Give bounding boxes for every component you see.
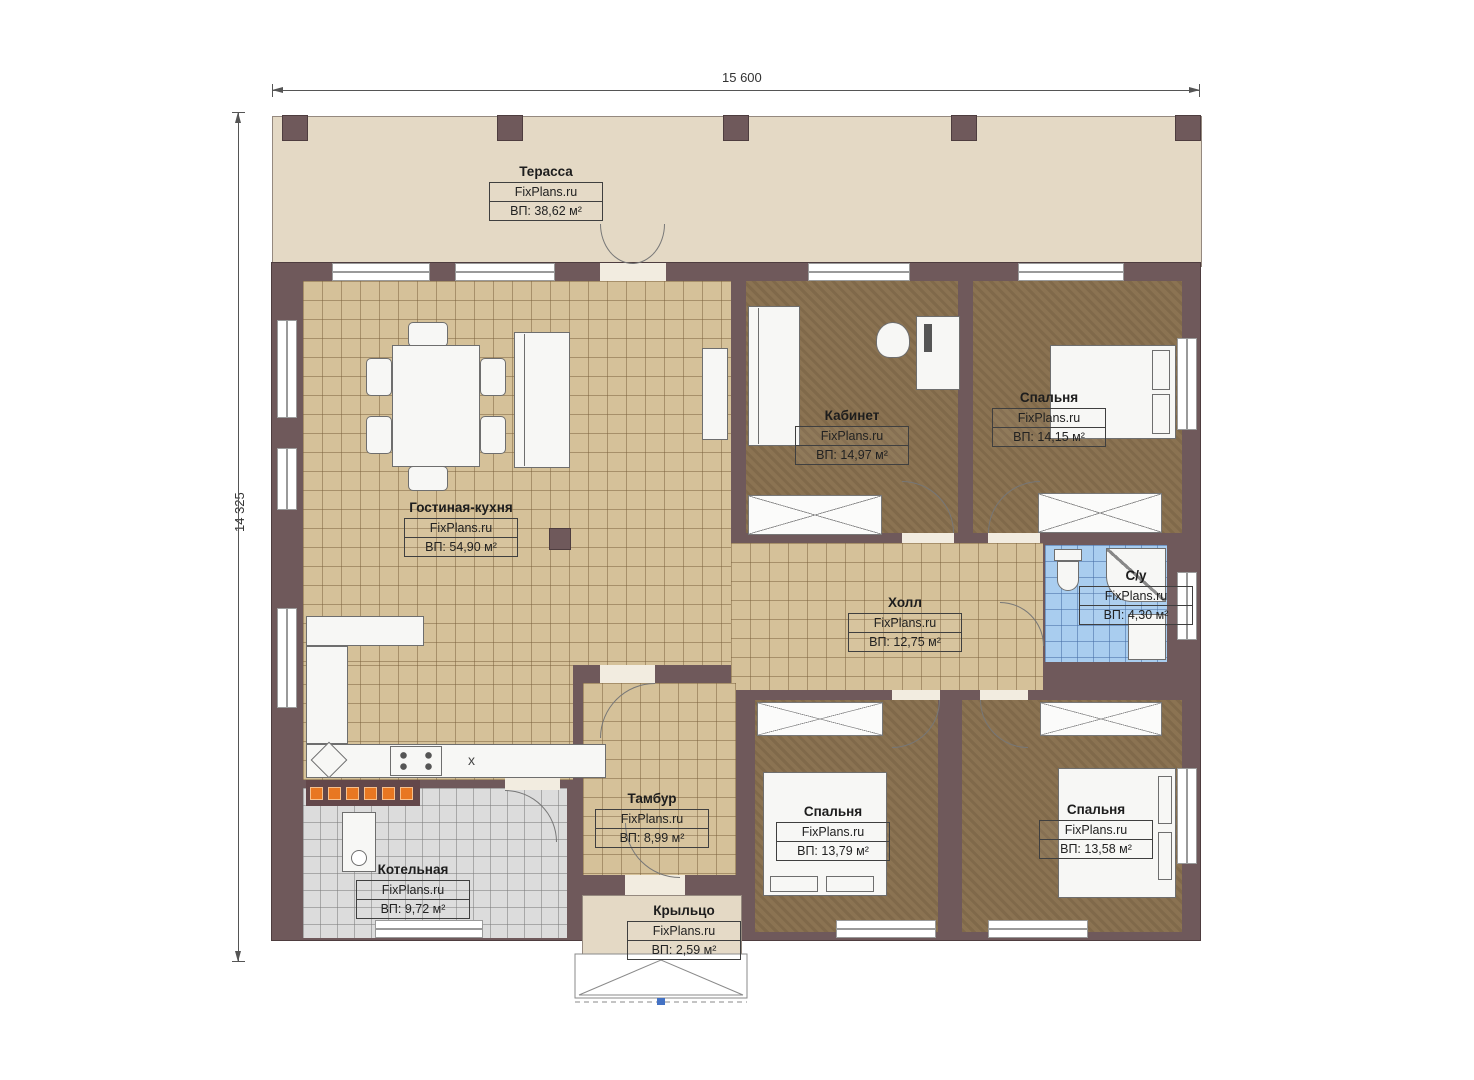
terrace-door-opening bbox=[600, 263, 666, 281]
kitchen-x-mark: x bbox=[468, 752, 475, 768]
window bbox=[1177, 338, 1197, 430]
office-sofa-line bbox=[758, 308, 759, 444]
label-hall: Холл FixPlans.ru ВП: 12,75 м² bbox=[848, 595, 962, 652]
label-porch: Крыльцо FixPlans.ru ВП: 2,59 м² bbox=[627, 903, 741, 960]
chair bbox=[366, 358, 392, 396]
area-text: ВП: 8,99 м² bbox=[596, 829, 708, 847]
window bbox=[455, 263, 555, 281]
kitchen-counter bbox=[306, 616, 424, 646]
area-text: ВП: 4,30 м² bbox=[1080, 606, 1192, 624]
watermark-text: FixPlans.ru bbox=[490, 183, 602, 202]
pillow bbox=[1152, 394, 1170, 434]
area-box: FixPlans.ru ВП: 2,59 м² bbox=[627, 921, 741, 960]
sofa bbox=[514, 332, 570, 468]
label-office: Кабинет FixPlans.ru ВП: 14,97 м² bbox=[795, 408, 909, 465]
toilet bbox=[1054, 549, 1082, 561]
radiator-strip bbox=[306, 780, 420, 806]
terrace-column bbox=[283, 116, 307, 140]
pillow bbox=[1152, 350, 1170, 390]
floor-plan: 15 600 14 325 bbox=[0, 0, 1474, 1080]
pillow bbox=[770, 876, 818, 892]
desk-chair bbox=[876, 322, 910, 358]
area-box: FixPlans.ru ВП: 13,58 м² bbox=[1039, 820, 1153, 859]
dimension-arrow-up bbox=[235, 112, 241, 123]
label-vestibule: Тамбур FixPlans.ru ВП: 8,99 м² bbox=[595, 791, 709, 848]
watermark-text: FixPlans.ru bbox=[357, 881, 469, 900]
area-box: FixPlans.ru ВП: 12,75 м² bbox=[848, 613, 962, 652]
radiator-cell bbox=[382, 787, 395, 800]
wardrobe bbox=[748, 495, 882, 535]
room-title: Кабинет bbox=[795, 408, 909, 423]
chair bbox=[480, 416, 506, 454]
window bbox=[836, 920, 936, 938]
area-text: ВП: 14,15 м² bbox=[993, 428, 1105, 446]
radiator-cell bbox=[364, 787, 377, 800]
label-bedroom-3: Спальня FixPlans.ru ВП: 13,58 м² bbox=[1039, 802, 1153, 859]
room-title: Крыльцо bbox=[627, 903, 741, 918]
dimension-arrow-left bbox=[272, 87, 283, 93]
radiator-cell bbox=[346, 787, 359, 800]
label-boiler-room: Котельная FixPlans.ru ВП: 9,72 м² bbox=[356, 862, 470, 919]
radiator-cell bbox=[328, 787, 341, 800]
dimension-arrow-right bbox=[1189, 87, 1200, 93]
window bbox=[988, 920, 1088, 938]
pillow bbox=[826, 876, 874, 892]
area-text: ВП: 12,75 м² bbox=[849, 633, 961, 651]
area-box: FixPlans.ru ВП: 4,30 м² bbox=[1079, 586, 1193, 625]
room-title: Котельная bbox=[356, 862, 470, 877]
computer-monitor bbox=[924, 324, 932, 352]
area-text: ВП: 2,59 м² bbox=[628, 941, 740, 959]
label-living-kitchen: Гостиная-кухня FixPlans.ru ВП: 54,90 м² bbox=[404, 500, 518, 557]
dimension-width-line bbox=[272, 90, 1200, 91]
door-opening bbox=[980, 690, 1028, 700]
pillow bbox=[1158, 776, 1172, 824]
room-title: Гостиная-кухня bbox=[404, 500, 518, 515]
room-title: Спальня bbox=[992, 390, 1106, 405]
label-bedroom-1: Спальня FixPlans.ru ВП: 14,15 м² bbox=[992, 390, 1106, 447]
area-box: FixPlans.ru ВП: 8,99 м² bbox=[595, 809, 709, 848]
watermark-text: FixPlans.ru bbox=[1080, 587, 1192, 606]
door-opening bbox=[625, 875, 685, 895]
label-bathroom: С/у FixPlans.ru ВП: 4,30 м² bbox=[1079, 568, 1193, 625]
watermark-text: FixPlans.ru bbox=[777, 823, 889, 842]
door-opening bbox=[902, 533, 954, 543]
room-title: Холл bbox=[848, 595, 962, 610]
dimension-arrow-down bbox=[235, 951, 241, 962]
watermark-text: FixPlans.ru bbox=[596, 810, 708, 829]
watermark-text: FixPlans.ru bbox=[628, 922, 740, 941]
room-title: Терасса bbox=[489, 164, 603, 179]
dimension-height-label: 14 325 bbox=[232, 492, 247, 532]
window bbox=[277, 448, 297, 510]
terrace-column bbox=[498, 116, 522, 140]
door-opening bbox=[505, 778, 560, 790]
watermark-text: FixPlans.ru bbox=[1040, 821, 1152, 840]
terrace-column bbox=[724, 116, 748, 140]
terrace-column bbox=[952, 116, 976, 140]
window bbox=[277, 320, 297, 418]
area-text: ВП: 14,97 м² bbox=[796, 446, 908, 464]
stove bbox=[390, 746, 442, 776]
office-sofa bbox=[748, 306, 800, 446]
wardrobe bbox=[1038, 493, 1162, 533]
door-opening bbox=[892, 690, 940, 700]
watermark-text: FixPlans.ru bbox=[405, 519, 517, 538]
desk bbox=[916, 316, 960, 390]
kitchen-counter bbox=[306, 744, 606, 778]
chair bbox=[408, 322, 448, 347]
interior-column bbox=[550, 529, 570, 549]
area-text: ВП: 38,62 м² bbox=[490, 202, 602, 220]
dimension-width-label: 15 600 bbox=[722, 70, 762, 85]
room-title: С/у bbox=[1079, 568, 1193, 583]
label-bedroom-2: Спальня FixPlans.ru ВП: 13,79 м² bbox=[776, 804, 890, 861]
area-text: ВП: 9,72 м² bbox=[357, 900, 469, 918]
sofa-armline bbox=[524, 334, 525, 466]
window bbox=[1177, 768, 1197, 864]
label-terrace: Терасса FixPlans.ru ВП: 38,62 м² bbox=[489, 164, 603, 221]
watermark-text: FixPlans.ru bbox=[796, 427, 908, 446]
dining-table bbox=[392, 345, 480, 467]
room-title: Спальня bbox=[776, 804, 890, 819]
wardrobe bbox=[1040, 702, 1162, 736]
room-title: Спальня bbox=[1039, 802, 1153, 817]
dimension-height-line bbox=[238, 112, 239, 962]
door-opening bbox=[988, 533, 1040, 543]
toilet-bowl bbox=[1057, 561, 1079, 591]
terrace-column bbox=[1176, 116, 1200, 140]
radiator-cell bbox=[310, 787, 323, 800]
kitchen-counter bbox=[306, 646, 348, 744]
area-text: ВП: 13,58 м² bbox=[1040, 840, 1152, 858]
window bbox=[277, 608, 297, 708]
room-title: Тамбур bbox=[595, 791, 709, 806]
area-box: FixPlans.ru ВП: 14,15 м² bbox=[992, 408, 1106, 447]
pillow bbox=[1158, 832, 1172, 880]
watermark-text: FixPlans.ru bbox=[849, 614, 961, 633]
porch-steps bbox=[574, 953, 748, 1005]
chair bbox=[408, 466, 448, 491]
door-opening bbox=[600, 665, 655, 683]
area-box: FixPlans.ru ВП: 9,72 м² bbox=[356, 880, 470, 919]
chair bbox=[480, 358, 506, 396]
wardrobe bbox=[757, 702, 883, 736]
window bbox=[375, 920, 483, 938]
area-text: ВП: 13,79 м² bbox=[777, 842, 889, 860]
tv-stand bbox=[702, 348, 728, 440]
watermark-text: FixPlans.ru bbox=[993, 409, 1105, 428]
area-box: FixPlans.ru ВП: 38,62 м² bbox=[489, 182, 603, 221]
window bbox=[808, 263, 910, 281]
area-box: FixPlans.ru ВП: 54,90 м² bbox=[404, 518, 518, 557]
window bbox=[332, 263, 430, 281]
chair bbox=[366, 416, 392, 454]
area-box: FixPlans.ru ВП: 13,79 м² bbox=[776, 822, 890, 861]
window bbox=[1018, 263, 1124, 281]
radiator-cell bbox=[400, 787, 413, 800]
area-text: ВП: 54,90 м² bbox=[405, 538, 517, 556]
area-box: FixPlans.ru ВП: 14,97 м² bbox=[795, 426, 909, 465]
